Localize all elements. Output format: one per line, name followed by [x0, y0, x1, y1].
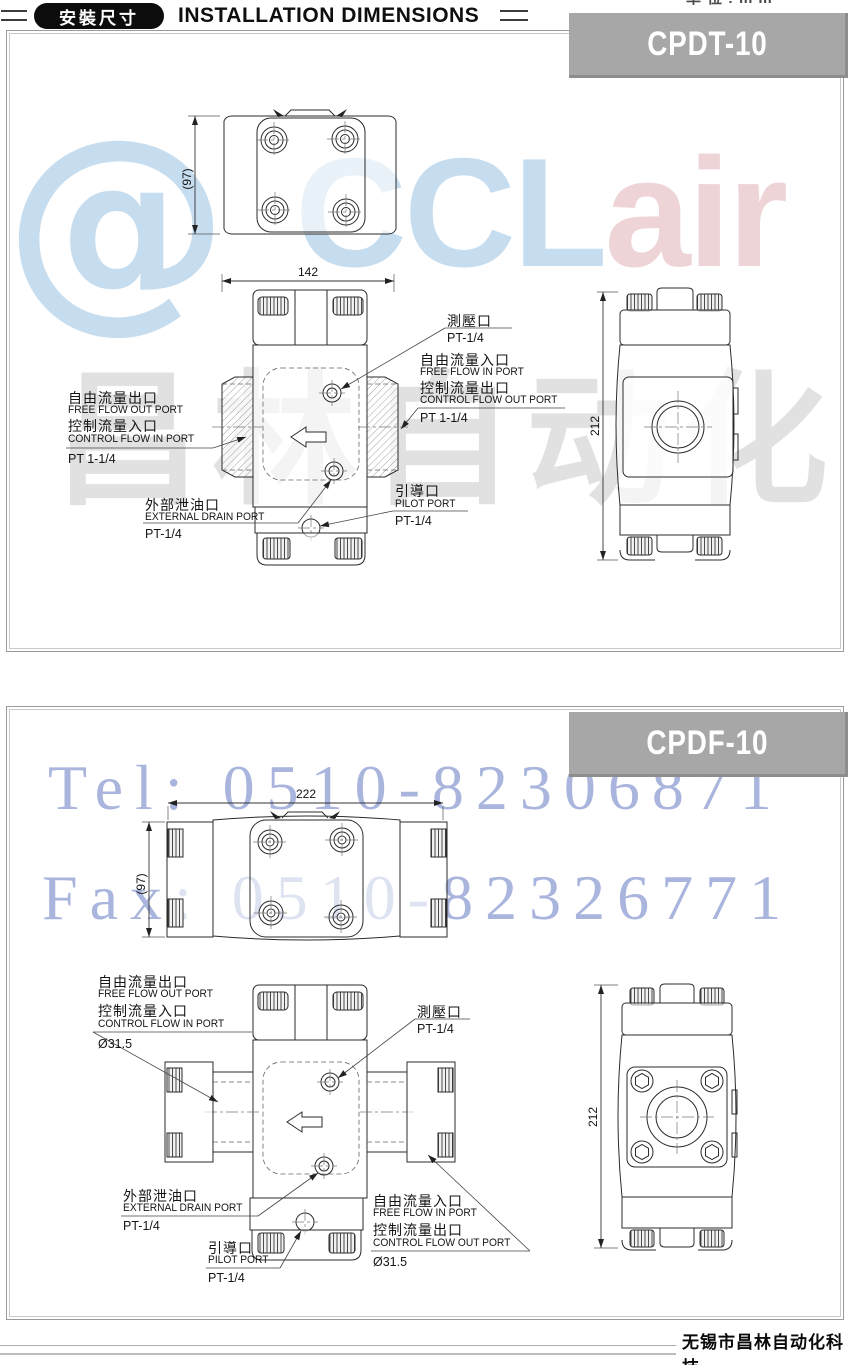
p1-pilot-label-en: PILOT PORT	[395, 498, 455, 510]
p2-gauge-port-size: PT-1/4	[417, 1022, 454, 1036]
model-banner-cpdt10-label: CPDT-10	[647, 25, 767, 64]
page-title: INSTALLATION DIMENSIONS	[178, 4, 479, 28]
p1-free-in-label-en: FREE FLOW IN PORT	[420, 366, 524, 378]
p2-ctrl-in-label-en: CONTROL FLOW IN PORT	[98, 1018, 224, 1030]
p1-pilot-size: PT-1/4	[395, 514, 432, 528]
section-badge-label: 安裝尺寸	[59, 4, 139, 29]
p1-gauge-port-label-cn: 測壓口	[447, 311, 492, 331]
header-right-rule	[500, 10, 528, 21]
p2-ctrl-out-label-en: CONTROL FLOW OUT PORT	[373, 1237, 510, 1249]
p2-pilot-size: PT-1/4	[208, 1271, 245, 1285]
section-badge: 安裝尺寸	[34, 3, 164, 29]
p1-right-port-size: PT 1-1/4	[420, 411, 468, 425]
model-banner-cpdf10-label: CPDF-10	[646, 724, 768, 763]
company-name: 无锡市昌林自动化科技	[676, 1328, 850, 1365]
model-banner-cpdt10: CPDT-10	[569, 13, 848, 78]
p1-ctrl-in-label-en: CONTROL FLOW IN PORT	[68, 433, 194, 445]
p1-left-port-size: PT 1-1/4	[68, 452, 116, 466]
catalog-page: 安裝尺寸 INSTALLATION DIMENSIONS 单位:mm CPDT-…	[0, 0, 850, 1365]
p2-drain-size: PT-1/4	[123, 1219, 160, 1233]
p1-gauge-port-size: PT-1/4	[447, 331, 484, 345]
p2-drain-label-en: EXTERNAL DRAIN PORT	[123, 1202, 242, 1214]
model-banner-cpdf10: CPDF-10	[569, 712, 848, 777]
cropped-unit-note: 单位:mm	[686, 0, 848, 8]
p1-drain-label-en: EXTERNAL DRAIN PORT	[145, 511, 264, 523]
panel-cpdt10-frame	[6, 30, 844, 652]
p1-ctrl-out-label-en: CONTROL FLOW OUT PORT	[420, 394, 557, 406]
p2-left-port-size: Ø31.5	[98, 1037, 132, 1051]
p2-gauge-port-label-cn: 測壓口	[417, 1002, 462, 1022]
p2-free-in-label-en: FREE FLOW IN PORT	[373, 1207, 477, 1219]
p1-free-out-label-en: FREE FLOW OUT PORT	[68, 404, 183, 416]
p1-drain-size: PT-1/4	[145, 527, 182, 541]
header-left-rule	[1, 10, 27, 21]
p2-pilot-label-en: PILOT PORT	[208, 1254, 268, 1266]
p2-right-port-size: Ø31.5	[373, 1255, 407, 1269]
p2-free-out-label-en: FREE FLOW OUT PORT	[98, 988, 213, 1000]
